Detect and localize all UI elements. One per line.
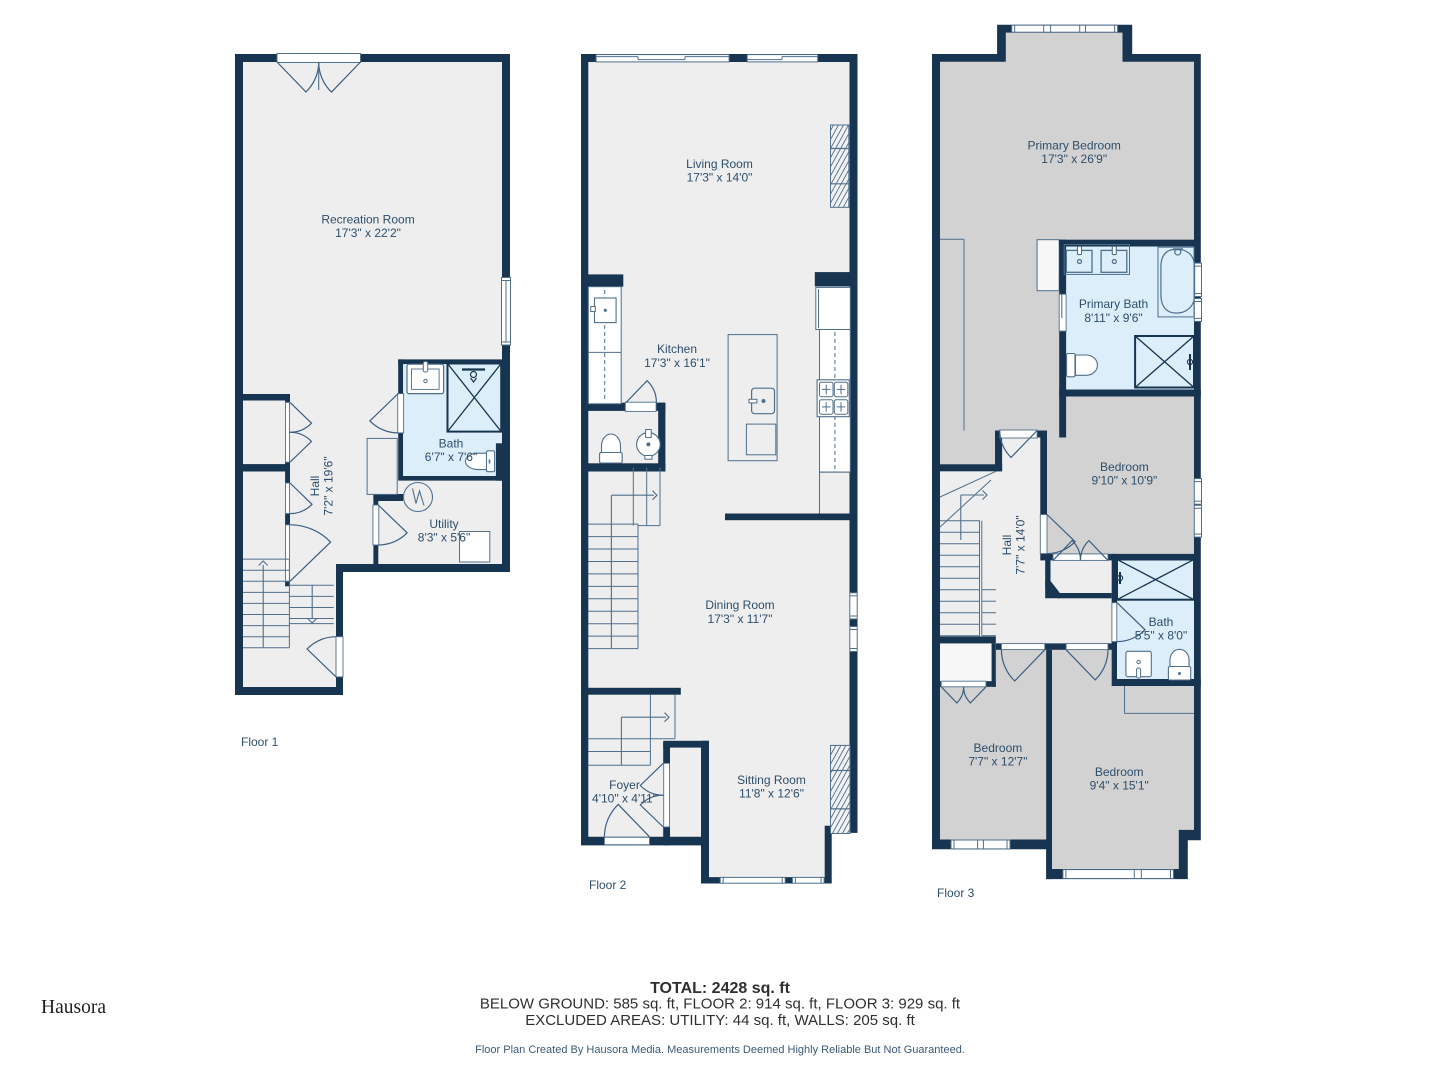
svg-text:Sitting Room: Sitting Room	[737, 773, 806, 787]
svg-text:Hausora: Hausora	[41, 997, 106, 1018]
svg-text:Floor 2: Floor 2	[589, 878, 627, 892]
svg-text:17'3" x 11'7": 17'3" x 11'7"	[708, 612, 773, 626]
svg-text:Bedroom: Bedroom	[1100, 460, 1149, 474]
svg-text:17'3" x 14'0": 17'3" x 14'0"	[687, 171, 753, 185]
svg-text:EXCLUDED AREAS: UTILITY: 44 sq: EXCLUDED AREAS: UTILITY: 44 sq. ft, WALL…	[525, 1012, 915, 1029]
svg-text:11'8" x 12'6": 11'8" x 12'6"	[739, 787, 804, 801]
svg-text:Kitchen: Kitchen	[657, 342, 697, 356]
svg-text:BELOW GROUND: 585 sq. ft, FLOO: BELOW GROUND: 585 sq. ft, FLOOR 2: 914 s…	[480, 996, 961, 1013]
svg-text:TOTAL: 2428 sq. ft: TOTAL: 2428 sq. ft	[650, 980, 791, 997]
svg-text:17'3" x 16'1": 17'3" x 16'1"	[644, 356, 710, 370]
svg-text:17'3" x 22'2": 17'3" x 22'2"	[335, 226, 401, 240]
svg-text:Bedroom: Bedroom	[974, 741, 1023, 755]
svg-text:Primary Bath: Primary Bath	[1079, 297, 1148, 311]
svg-text:Primary Bedroom: Primary Bedroom	[1028, 138, 1121, 152]
svg-text:Floor Plan Created By Hausora: Floor Plan Created By Hausora Media. Mea…	[475, 1044, 965, 1056]
svg-text:Dining Room: Dining Room	[705, 598, 774, 612]
svg-text:7'7" x 12'7": 7'7" x 12'7"	[968, 755, 1027, 769]
svg-text:Foyer: Foyer	[609, 778, 640, 792]
svg-text:Floor 1: Floor 1	[241, 735, 279, 749]
svg-text:Hall: Hall	[308, 476, 322, 497]
svg-text:8'3" x 5'6": 8'3" x 5'6"	[418, 531, 470, 545]
svg-text:9'4" x 15'1": 9'4" x 15'1"	[1090, 779, 1149, 793]
svg-text:7'7" x 14'0": 7'7" x 14'0"	[1014, 515, 1028, 574]
svg-text:Utility: Utility	[429, 517, 458, 531]
svg-text:Recreation Room: Recreation Room	[321, 212, 414, 226]
svg-text:8'11" x 9'6": 8'11" x 9'6"	[1084, 311, 1142, 325]
svg-text:Bath: Bath	[1149, 615, 1174, 629]
svg-text:Hall: Hall	[1000, 535, 1014, 556]
svg-text:Living Room: Living Room	[686, 157, 753, 171]
svg-text:7'2" x 19'6": 7'2" x 19'6"	[322, 456, 336, 515]
svg-text:5'5" x 8'0": 5'5" x 8'0"	[1135, 629, 1187, 643]
svg-text:Bath: Bath	[439, 436, 464, 450]
svg-text:9'10" x 10'9": 9'10" x 10'9"	[1091, 474, 1157, 488]
svg-text:17'3" x 26'9": 17'3" x 26'9"	[1041, 152, 1107, 166]
svg-text:Floor 3: Floor 3	[937, 886, 975, 900]
svg-text:6'7" x 7'6": 6'7" x 7'6"	[425, 450, 477, 464]
svg-text:4'10" x 4'11": 4'10" x 4'11"	[592, 792, 657, 806]
svg-text:Bedroom: Bedroom	[1095, 765, 1144, 779]
